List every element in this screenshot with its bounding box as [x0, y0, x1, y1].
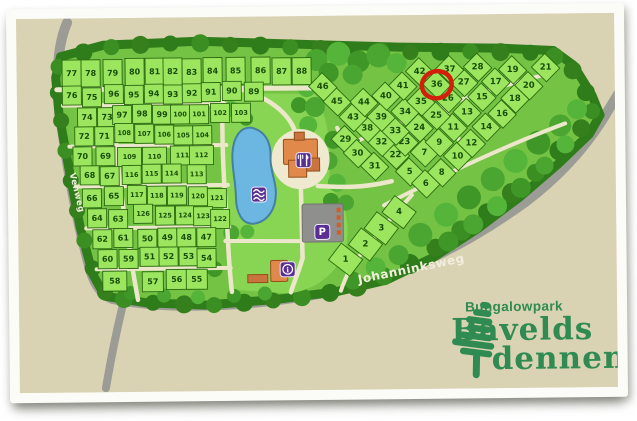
- plot-114: 114: [162, 164, 181, 183]
- plot-113: 113: [187, 165, 206, 184]
- svg-text:92: 92: [186, 89, 197, 98]
- plot-110: 110: [142, 147, 166, 166]
- svg-text:20: 20: [523, 81, 535, 91]
- plot-83: 83: [182, 59, 201, 86]
- plot-70: 70: [73, 147, 92, 166]
- plot-56: 56: [166, 269, 187, 289]
- map-photo-card: 7778798081828384858687887675969594939291…: [6, 3, 628, 403]
- svg-text:107: 107: [137, 130, 151, 138]
- svg-text:40: 40: [380, 91, 392, 101]
- plot-77: 77: [62, 60, 81, 87]
- svg-text:11: 11: [447, 123, 459, 133]
- svg-text:70: 70: [77, 152, 89, 161]
- plot-52: 52: [159, 247, 178, 266]
- svg-text:108: 108: [117, 129, 131, 137]
- plot-64: 64: [88, 209, 107, 228]
- svg-text:68: 68: [84, 171, 96, 180]
- svg-text:49: 49: [162, 233, 174, 242]
- plot-58: 58: [103, 271, 127, 291]
- svg-text:12: 12: [465, 138, 477, 148]
- svg-text:57: 57: [147, 277, 158, 286]
- parking-icon: P: [319, 227, 326, 238]
- plot-51: 51: [140, 247, 159, 266]
- plot-100: 100: [170, 105, 189, 124]
- svg-text:48: 48: [181, 233, 193, 242]
- plot-121: 121: [207, 188, 226, 207]
- svg-text:96: 96: [108, 90, 120, 99]
- svg-text:88: 88: [296, 67, 308, 76]
- plot-60: 60: [98, 250, 117, 269]
- plot-79: 79: [103, 60, 122, 87]
- svg-text:83: 83: [186, 68, 197, 77]
- svg-text:43: 43: [347, 113, 359, 123]
- svg-text:29: 29: [339, 135, 351, 145]
- svg-text:93: 93: [167, 90, 178, 99]
- plot-87: 87: [272, 58, 291, 85]
- plot-98: 98: [132, 104, 151, 123]
- swimming-badge: [251, 187, 266, 202]
- plot-97: 97: [112, 105, 131, 124]
- svg-text:111: 111: [176, 151, 190, 159]
- plot-106: 106: [155, 125, 174, 144]
- svg-text:51: 51: [144, 252, 156, 261]
- plot-54: 54: [197, 249, 216, 268]
- plot-104: 104: [193, 126, 212, 145]
- plot-124: 124: [176, 206, 195, 225]
- plot-120: 120: [188, 187, 207, 206]
- svg-text:89: 89: [248, 87, 260, 96]
- plot-115: 115: [142, 164, 161, 183]
- plot-90: 90: [222, 81, 241, 100]
- plot-84: 84: [203, 57, 222, 84]
- svg-text:99: 99: [156, 110, 168, 119]
- svg-text:17: 17: [490, 77, 502, 87]
- svg-text:41: 41: [397, 81, 409, 91]
- plot-112: 112: [189, 146, 213, 165]
- plot-63: 63: [109, 209, 128, 228]
- parking-badge: P: [315, 224, 330, 239]
- svg-text:122: 122: [213, 215, 227, 223]
- svg-text:2: 2: [362, 239, 368, 249]
- svg-text:5: 5: [407, 167, 413, 177]
- svg-text:69: 69: [100, 152, 112, 161]
- plot-57: 57: [142, 272, 163, 292]
- svg-text:45: 45: [331, 97, 343, 107]
- svg-text:21: 21: [540, 63, 552, 73]
- svg-text:81: 81: [149, 67, 161, 76]
- svg-text:73: 73: [101, 113, 112, 122]
- svg-text:74: 74: [81, 113, 93, 122]
- svg-text:18: 18: [509, 94, 521, 104]
- svg-text:1: 1: [343, 255, 349, 265]
- svg-text:106: 106: [157, 131, 171, 139]
- plot-85: 85: [226, 57, 245, 84]
- pine-tree-icon: [451, 299, 514, 386]
- svg-text:31: 31: [369, 161, 381, 171]
- svg-text:91: 91: [205, 88, 217, 97]
- svg-text:103: 103: [234, 109, 248, 117]
- svg-text:95: 95: [128, 90, 140, 99]
- svg-text:8: 8: [439, 168, 445, 178]
- plot-103: 103: [231, 103, 250, 122]
- svg-text:52: 52: [163, 252, 174, 261]
- svg-text:14: 14: [480, 122, 492, 132]
- park-logo: Bungalowpark Bavelds dennen: [451, 298, 618, 375]
- svg-text:119: 119: [170, 191, 184, 199]
- svg-text:27: 27: [458, 77, 470, 87]
- svg-text:58: 58: [109, 277, 121, 286]
- svg-text:77: 77: [66, 69, 77, 78]
- svg-text:110: 110: [148, 153, 162, 161]
- svg-text:10: 10: [452, 151, 464, 161]
- svg-text:32: 32: [375, 137, 387, 147]
- svg-text:55: 55: [191, 275, 203, 284]
- plot-93: 93: [163, 85, 182, 104]
- plot-123: 123: [194, 207, 213, 226]
- svg-text:50: 50: [142, 234, 154, 243]
- svg-text:7: 7: [421, 148, 427, 158]
- plot-122: 122: [211, 209, 230, 228]
- svg-text:124: 124: [178, 211, 192, 219]
- svg-text:82: 82: [167, 67, 178, 76]
- plot-125: 125: [156, 206, 175, 225]
- svg-text:94: 94: [148, 89, 160, 98]
- svg-text:102: 102: [213, 109, 227, 117]
- park-map: 7778798081828384858687887675969594939291…: [16, 13, 618, 393]
- svg-text:115: 115: [145, 170, 159, 178]
- svg-text:67: 67: [104, 172, 115, 181]
- plot-50: 50: [138, 229, 157, 248]
- svg-text:118: 118: [150, 192, 164, 200]
- plot-80: 80: [125, 58, 144, 85]
- plot-101: 101: [189, 105, 208, 124]
- plot-118: 118: [147, 186, 166, 205]
- svg-text:90: 90: [226, 86, 238, 95]
- plot-107: 107: [135, 124, 154, 143]
- svg-text:79: 79: [107, 69, 119, 78]
- plot-78: 78: [81, 60, 100, 87]
- svg-text:64: 64: [92, 214, 104, 223]
- svg-text:33: 33: [389, 126, 401, 136]
- svg-text:121: 121: [210, 194, 224, 202]
- svg-text:72: 72: [79, 132, 90, 141]
- plot-69: 69: [96, 147, 115, 166]
- svg-text:6: 6: [423, 179, 429, 189]
- plot-95: 95: [124, 85, 143, 104]
- svg-text:80: 80: [129, 67, 141, 76]
- plot-61: 61: [114, 228, 133, 247]
- svg-text:97: 97: [116, 110, 127, 119]
- svg-text:3: 3: [378, 223, 384, 233]
- svg-text:53: 53: [183, 252, 194, 261]
- svg-text:36: 36: [431, 80, 443, 90]
- plot-88: 88: [292, 58, 311, 85]
- svg-text:113: 113: [190, 170, 204, 178]
- svg-text:117: 117: [130, 191, 144, 199]
- plot-53: 53: [179, 247, 198, 266]
- svg-text:30: 30: [352, 149, 364, 159]
- svg-text:114: 114: [165, 169, 179, 177]
- plot-75: 75: [82, 88, 101, 107]
- plot-68: 68: [80, 166, 99, 185]
- svg-text:22: 22: [390, 150, 402, 160]
- svg-text:54: 54: [201, 254, 213, 263]
- plot-59: 59: [119, 249, 138, 268]
- svg-text:65: 65: [108, 192, 120, 201]
- plot-109: 109: [117, 147, 141, 166]
- svg-text:105: 105: [176, 131, 190, 139]
- svg-text:62: 62: [97, 235, 108, 244]
- svg-text:123: 123: [196, 212, 210, 220]
- svg-text:61: 61: [118, 233, 130, 242]
- plot-99: 99: [152, 105, 171, 124]
- svg-text:39: 39: [375, 112, 387, 122]
- svg-text:66: 66: [86, 194, 98, 203]
- svg-text:i: i: [286, 265, 289, 274]
- plot-62: 62: [93, 230, 112, 249]
- svg-text:98: 98: [136, 109, 148, 118]
- plot-89: 89: [244, 82, 263, 101]
- svg-text:120: 120: [191, 192, 205, 200]
- plot-65: 65: [104, 187, 123, 206]
- svg-text:16: 16: [496, 109, 508, 119]
- svg-text:101: 101: [192, 110, 206, 118]
- svg-text:104: 104: [195, 131, 209, 139]
- svg-text:126: 126: [136, 210, 150, 218]
- plot-47: 47: [197, 228, 216, 247]
- plot-55: 55: [186, 269, 207, 289]
- svg-text:47: 47: [201, 233, 212, 242]
- svg-text:85: 85: [230, 66, 242, 75]
- plot-105: 105: [174, 126, 193, 145]
- svg-text:125: 125: [158, 212, 172, 220]
- svg-text:9: 9: [436, 138, 442, 148]
- svg-text:71: 71: [99, 132, 111, 141]
- plot-76: 76: [62, 86, 81, 105]
- svg-text:44: 44: [358, 97, 370, 107]
- plot-92: 92: [182, 84, 201, 103]
- svg-text:4: 4: [396, 207, 402, 217]
- svg-text:24: 24: [413, 123, 425, 133]
- plot-116: 116: [122, 165, 141, 184]
- svg-text:84: 84: [207, 67, 219, 76]
- svg-text:28: 28: [472, 62, 484, 72]
- restaurant-badge: [296, 153, 311, 168]
- plot-96: 96: [104, 85, 123, 104]
- plot-72: 72: [75, 127, 94, 146]
- plot-119: 119: [167, 186, 186, 205]
- svg-text:60: 60: [102, 255, 114, 264]
- svg-text:109: 109: [123, 153, 137, 161]
- svg-text:35: 35: [415, 97, 427, 107]
- plot-49: 49: [158, 228, 177, 247]
- svg-text:38: 38: [361, 123, 373, 133]
- plot-91: 91: [201, 83, 220, 102]
- plot-67: 67: [100, 167, 119, 186]
- svg-text:100: 100: [173, 110, 187, 118]
- plot-102: 102: [210, 103, 229, 122]
- plot-74: 74: [77, 108, 96, 127]
- svg-text:46: 46: [317, 82, 329, 92]
- plot-117: 117: [127, 185, 146, 204]
- svg-text:59: 59: [123, 254, 135, 263]
- plot-94: 94: [144, 84, 163, 103]
- svg-text:19: 19: [507, 65, 519, 75]
- svg-text:63: 63: [113, 215, 124, 224]
- plot-82: 82: [163, 58, 182, 85]
- svg-text:78: 78: [85, 69, 97, 78]
- plot-126: 126: [134, 204, 153, 223]
- plot-48: 48: [177, 228, 196, 247]
- svg-text:87: 87: [276, 67, 287, 76]
- svg-text:13: 13: [461, 107, 473, 117]
- plot-108: 108: [115, 123, 134, 142]
- svg-text:56: 56: [171, 275, 183, 284]
- svg-text:34: 34: [399, 107, 411, 117]
- plot-81: 81: [145, 58, 164, 85]
- svg-text:25: 25: [430, 111, 442, 121]
- svg-text:76: 76: [66, 91, 78, 100]
- svg-text:112: 112: [195, 151, 209, 159]
- svg-text:116: 116: [125, 171, 139, 179]
- plot-71: 71: [95, 127, 114, 146]
- svg-text:86: 86: [255, 66, 267, 75]
- svg-text:15: 15: [476, 92, 488, 102]
- information-badge: i: [280, 262, 295, 277]
- svg-text:75: 75: [86, 93, 98, 102]
- plot-86: 86: [251, 57, 270, 84]
